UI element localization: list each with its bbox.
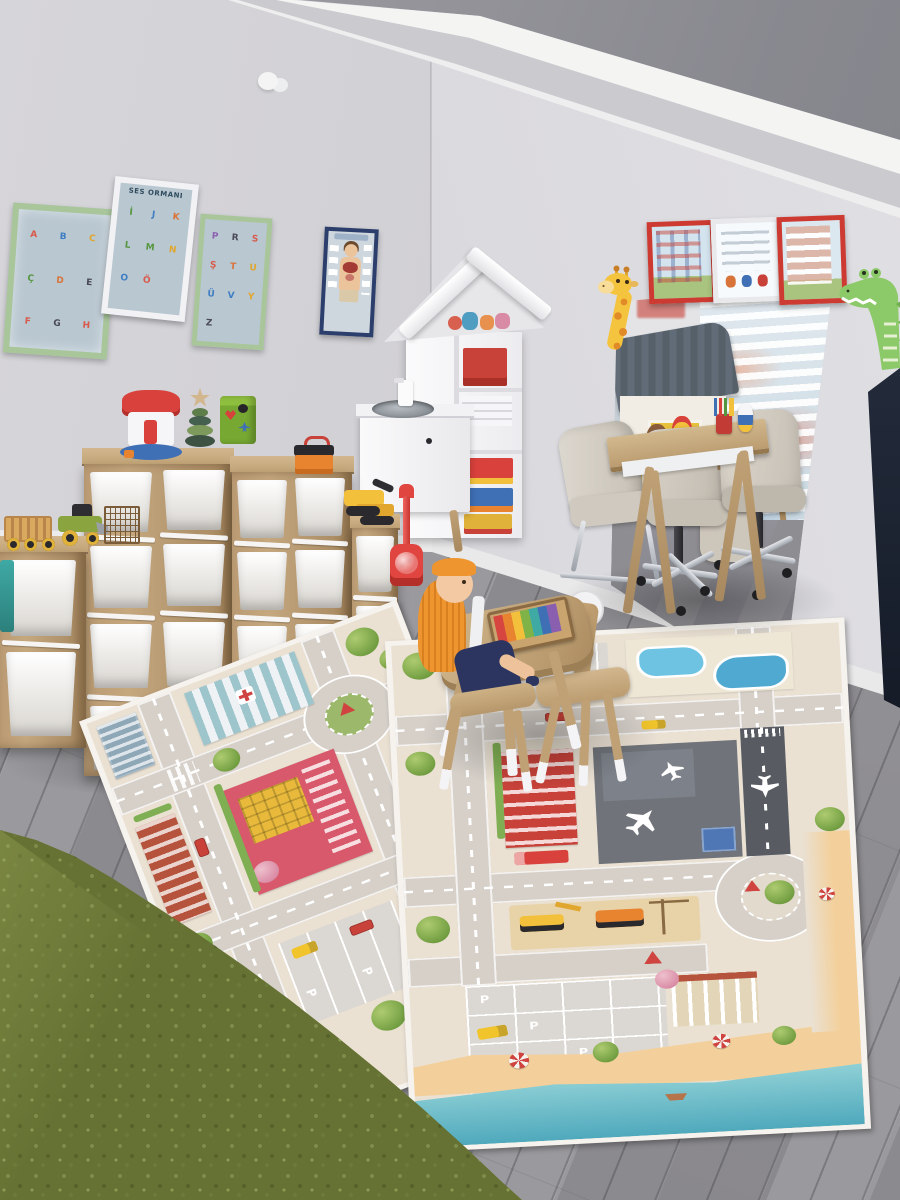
excavator-track — [346, 506, 380, 516]
bin-rail — [160, 610, 228, 619]
airplane-icon — [618, 802, 666, 840]
storage-bin — [295, 550, 345, 608]
storage-bin — [356, 536, 394, 592]
letter: P — [211, 232, 218, 243]
storage-bin — [237, 552, 287, 610]
alphabet-letters: P R S Ş T U Ü V Y Z — [197, 219, 267, 345]
ceiling-fixture — [258, 72, 278, 90]
bin-rail — [292, 539, 348, 547]
chair-caster — [676, 606, 686, 616]
letter: F — [24, 317, 31, 328]
toy-toolbox — [294, 436, 334, 474]
letter: L — [124, 241, 131, 252]
letter: N — [168, 245, 177, 257]
rug-tree — [814, 806, 845, 832]
chair-caster — [782, 568, 792, 578]
cube-heart — [225, 410, 236, 420]
parking-p-marking: P — [303, 987, 318, 999]
letter: E — [86, 277, 93, 288]
letter: M — [145, 243, 155, 255]
dump-truck — [595, 908, 644, 928]
construction-site — [509, 896, 701, 951]
letter: H — [82, 321, 90, 332]
letter: R — [231, 233, 239, 244]
boy-shorts — [339, 290, 359, 303]
teal-toy-bucket — [0, 560, 14, 632]
boy-head — [344, 244, 358, 258]
doll-eye — [462, 580, 466, 584]
crane-mast — [661, 899, 666, 934]
letter: İ — [129, 208, 133, 219]
digger-toy — [519, 914, 564, 932]
storage-bin — [6, 560, 76, 636]
toolbox-body — [295, 455, 333, 474]
storage-bin — [6, 652, 76, 736]
stacking-ring-tower — [184, 388, 216, 452]
bin-rail — [2, 640, 80, 649]
poster-marks — [656, 229, 702, 283]
letter: Y — [247, 292, 254, 303]
plush-toy — [462, 312, 478, 330]
letter: O — [120, 273, 129, 285]
alphabet-poster-a: A B C Ç D E F G H — [3, 203, 117, 360]
giraffe-wall-decal — [588, 262, 650, 354]
soap-dispenser-spout — [394, 378, 404, 383]
crocodile-wall-decal — [838, 264, 900, 372]
playroom-photo: A B C Ç D E F G H SES ORMANI İ J K L M N… — [0, 0, 900, 1200]
letter: V — [227, 291, 235, 302]
letter: D — [56, 275, 64, 286]
red-frame-poster-right — [776, 215, 847, 305]
poster-title-band — [334, 233, 368, 241]
tractor-wheel — [62, 530, 78, 546]
runway-threshold — [744, 728, 780, 738]
duck-figurine — [738, 404, 753, 432]
crane-arm — [649, 899, 689, 903]
museum-building — [671, 971, 760, 1027]
truck-wheel — [42, 538, 55, 551]
wooden-toy-truck — [4, 512, 62, 552]
alphabet-poster-b-ses-ormani: SES ORMANI İ J K L M N O Ö — [101, 176, 199, 322]
toy-excavator — [342, 482, 396, 526]
digger-boom — [555, 902, 582, 912]
swimming-pool — [636, 644, 708, 680]
vacuum-dome — [395, 552, 418, 574]
colored-pencils — [714, 398, 734, 416]
pencil-cup — [716, 414, 732, 434]
alphabet-letters: A B C Ç D E F G H — [9, 209, 110, 353]
excavator-track — [360, 516, 394, 525]
chair-caster — [636, 576, 646, 586]
activity-cube — [220, 396, 256, 444]
storage-bin — [90, 624, 152, 688]
label-chips-left — [328, 245, 339, 291]
airplane-icon — [750, 775, 779, 799]
plush-toy — [448, 316, 462, 330]
tractor-wheel — [86, 532, 99, 545]
cube-plane — [238, 422, 251, 432]
parking-p-marking: P — [529, 1021, 539, 1032]
letter: J — [151, 210, 155, 221]
truck-wheel — [24, 538, 37, 551]
letter: A — [30, 230, 38, 241]
letter: Z — [205, 318, 212, 329]
red-frame-poster-left — [647, 220, 718, 304]
letter: C — [89, 234, 96, 245]
cube-panda — [238, 404, 248, 413]
parking-p-marking: P — [480, 995, 490, 1006]
alphabet-letters: İ J K L M N O Ö — [109, 194, 191, 304]
storage-bin — [163, 470, 225, 530]
tractor-body — [58, 516, 102, 532]
toy-house-shape-sorter — [120, 390, 182, 462]
xylophone-bars — [493, 603, 561, 644]
letter: G — [53, 319, 61, 330]
truck-wheel — [7, 538, 20, 551]
mall-awning — [237, 777, 314, 844]
storage-bin — [163, 544, 225, 606]
wire-basket — [104, 506, 140, 544]
poster-chart-rows — [721, 230, 770, 272]
rug-tree — [415, 915, 450, 944]
letter: Ç — [27, 273, 34, 284]
sorter-door — [144, 420, 157, 444]
letter: Ü — [207, 289, 215, 300]
rug-tree — [341, 623, 383, 661]
sorter-block — [124, 450, 134, 458]
game-box — [464, 514, 512, 534]
taxi-car — [291, 940, 319, 959]
red-car — [349, 919, 375, 937]
lungs-organ — [342, 262, 358, 274]
storage-bin — [90, 546, 152, 608]
letter: U — [249, 263, 257, 274]
bin-rail — [234, 541, 290, 549]
bin-rail — [160, 532, 228, 541]
soap-dispenser — [398, 380, 413, 406]
letter: T — [230, 262, 237, 273]
letter: B — [59, 232, 67, 243]
cabinet-door-knob — [426, 438, 432, 444]
bin-rail — [87, 612, 155, 621]
toy-tractor — [58, 504, 106, 552]
swimming-pool — [712, 652, 790, 691]
fire-truck — [514, 850, 569, 866]
hangar — [701, 827, 736, 853]
sand-right-edge — [801, 830, 859, 1032]
poster-kid-figures — [726, 275, 736, 287]
cubby-shelf-line — [459, 388, 522, 392]
tower-star — [190, 388, 210, 408]
parking-p-marking: P — [359, 966, 374, 978]
letter: Ö — [142, 276, 151, 288]
doll-hair-fringe — [432, 558, 476, 576]
white-frame-poster — [711, 217, 784, 303]
alphabet-poster-c: P R S Ş T U Ü V Y Z — [191, 214, 272, 351]
chair-caster — [700, 586, 710, 596]
letter: S — [251, 234, 258, 245]
label-chips-right — [361, 245, 372, 295]
bin-rail — [292, 613, 348, 621]
letter: Ş — [209, 261, 216, 272]
toy-vacuum-base — [390, 544, 423, 586]
plush-toy — [480, 315, 494, 330]
storage-bin — [295, 478, 345, 536]
airport-runway — [740, 726, 791, 856]
gable-toys-row — [448, 310, 518, 332]
letter: K — [172, 212, 180, 223]
taxi-car — [477, 1024, 509, 1040]
anatomy-poster — [319, 227, 379, 338]
poster-photo-rows — [786, 225, 832, 285]
bin-rail — [234, 615, 290, 623]
tower-ring — [185, 435, 215, 447]
red-toy-box — [463, 348, 507, 386]
plush-toy — [495, 313, 510, 329]
toy-vacuum-stick — [403, 496, 410, 548]
storage-bin — [237, 480, 287, 538]
